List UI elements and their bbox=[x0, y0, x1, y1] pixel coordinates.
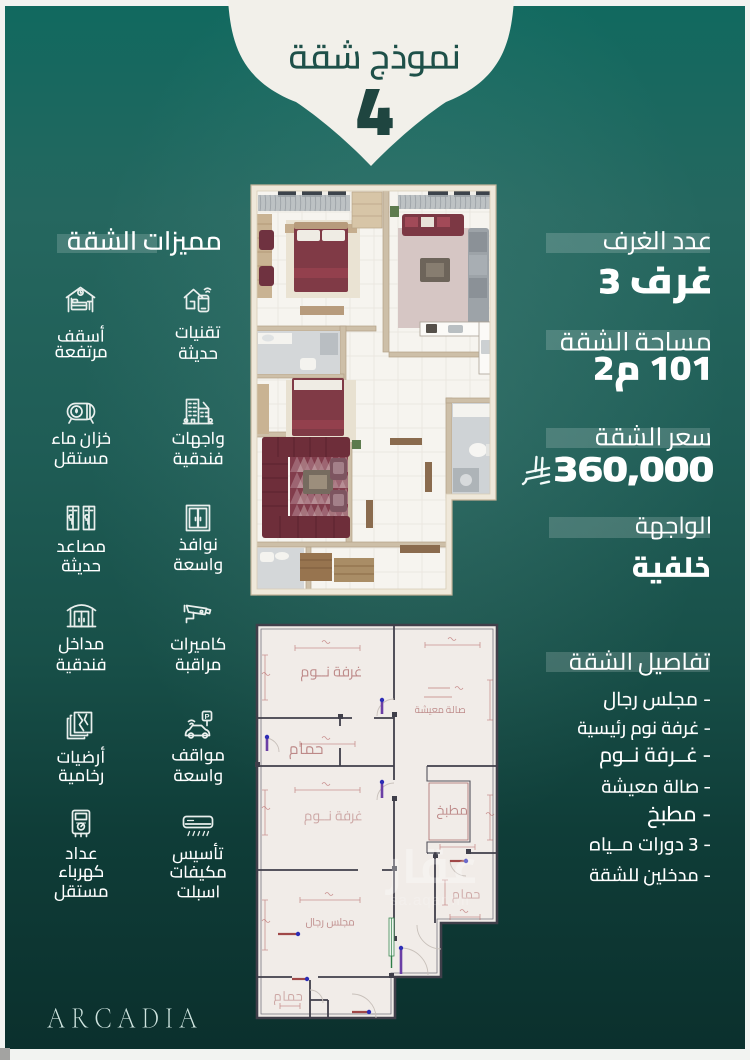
svg-text:sa.aqar.fm: sa.aqar.fm bbox=[390, 892, 470, 909]
svg-text:P: P bbox=[204, 712, 209, 721]
